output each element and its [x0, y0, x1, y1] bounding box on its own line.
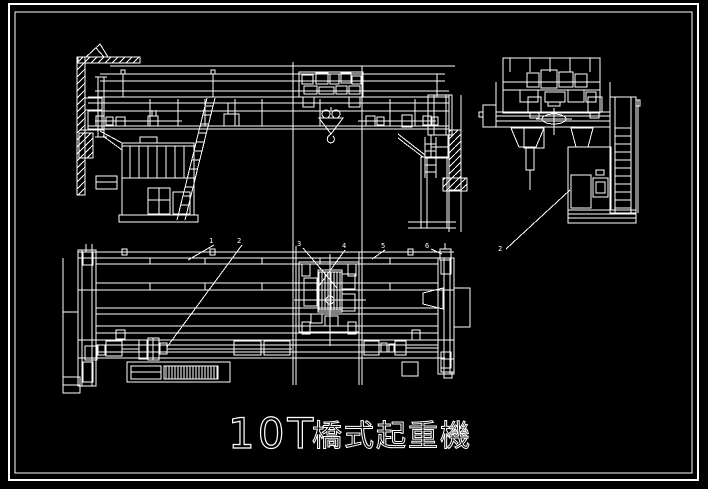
- girder-railing: [100, 66, 455, 97]
- trolley-drive-units: [311, 314, 338, 326]
- hatch-covers: [234, 341, 290, 355]
- cab-windows: [122, 146, 194, 178]
- housing-outline: [503, 58, 600, 113]
- gear-motor-group: [364, 341, 406, 355]
- hoist-motor: [304, 278, 317, 306]
- operator-seat: [593, 170, 608, 197]
- cab-ladder: [177, 98, 215, 220]
- mid-shaft-bearing: [224, 103, 239, 126]
- section-reference: [63, 258, 78, 378]
- cab-inner-panel: [571, 175, 591, 208]
- girder-lines: [78, 252, 454, 290]
- title-text: 橋式起重機: [312, 419, 472, 454]
- cab-base-platform: [568, 210, 636, 223]
- drive-accessories: [402, 330, 420, 376]
- end-truck-left: [95, 77, 107, 137]
- end-truck-left-lines: [95, 77, 107, 137]
- side-bracket: [454, 288, 470, 327]
- plan-bridge-drive-right: [364, 330, 438, 376]
- corbel-hatch: [79, 133, 93, 158]
- buffer: [63, 377, 80, 393]
- support-leg: [524, 128, 544, 190]
- plan-girder-top: [78, 249, 454, 290]
- callout-label-1: 1: [209, 237, 213, 245]
- title-tonnage: 10T: [228, 409, 316, 458]
- side-ladder: [610, 97, 640, 213]
- cab-side: [568, 147, 636, 223]
- shaft-couplings: [96, 110, 158, 126]
- plan-girder-bottom: [78, 308, 454, 340]
- side-deck: [479, 82, 610, 127]
- deck-band: [496, 82, 610, 127]
- drive-shaft-right: [358, 115, 438, 127]
- plan-view: 1 2 3 4 5 6: [63, 237, 470, 393]
- girder-support-left: [511, 128, 544, 147]
- ladder-rungs-side: [615, 97, 631, 213]
- cab-mount-plan: [423, 288, 443, 309]
- callout-label-6: 6: [425, 242, 429, 250]
- plan-walkway: [78, 341, 445, 382]
- building-structure-left: [77, 44, 140, 195]
- trolley-front: [299, 72, 363, 107]
- cab-brace: [100, 131, 122, 150]
- side-supports: [511, 128, 593, 190]
- resistor-bank: [164, 366, 218, 379]
- trolley-wheels: [303, 97, 360, 107]
- title-block: 10T 橋式起重機: [228, 409, 472, 458]
- limit-switch-box: [96, 176, 117, 189]
- handrail: [636, 100, 640, 213]
- ladder-rails: [177, 98, 215, 220]
- girder-support-right: [571, 128, 593, 147]
- wall-column-hatch: [77, 57, 85, 195]
- cab-outline: [122, 143, 194, 215]
- ladder-frame: [610, 97, 636, 213]
- callout-label-4: 4: [342, 242, 346, 250]
- side-housing: [503, 58, 600, 113]
- ladder-rungs: [178, 106, 213, 214]
- corbel-hatch: [443, 178, 467, 191]
- main-girder: [88, 91, 449, 129]
- railing-rails: [100, 74, 445, 81]
- plan-end-truck-left: [63, 244, 96, 393]
- cab-roof-vent: [140, 137, 157, 143]
- left-outrigger: [479, 105, 496, 127]
- bearing-pedestal: [224, 103, 239, 126]
- hook-block-front: [319, 107, 343, 143]
- railing-posts: [123, 74, 437, 97]
- girder-lines: [78, 308, 454, 340]
- hook: [327, 134, 334, 143]
- callout-label-5: 5: [381, 242, 385, 250]
- railing-post-caps: [121, 70, 215, 74]
- end-truck-wheel: [431, 135, 448, 158]
- roof-triangle: [86, 44, 108, 57]
- leader-line: [506, 190, 570, 249]
- runway-wheel: [88, 110, 102, 130]
- diagonal-brace: [398, 134, 425, 157]
- border-frame: [9, 4, 698, 480]
- trolley-plan: [294, 254, 366, 346]
- side-callout: 2: [498, 190, 570, 253]
- girder-flange-lines: [88, 91, 449, 129]
- hoist-gearbox: [342, 274, 355, 311]
- side-section-view: 2: [479, 58, 640, 253]
- resistor-box: [131, 366, 161, 379]
- end-truck-outline: [438, 258, 454, 374]
- coupling-brake-group: [139, 338, 167, 360]
- callout-label-2: 2: [237, 237, 241, 245]
- callout-label-3: 3: [297, 240, 301, 248]
- callout-label: 2: [498, 245, 502, 253]
- crane-cad-drawing: 2: [0, 0, 708, 489]
- front-elevation-view: [77, 44, 467, 232]
- outer-border: [9, 4, 698, 480]
- operator-cab-front: [96, 131, 198, 222]
- ceiling-hatch: [78, 57, 140, 63]
- drive-shaft-left: [95, 110, 182, 126]
